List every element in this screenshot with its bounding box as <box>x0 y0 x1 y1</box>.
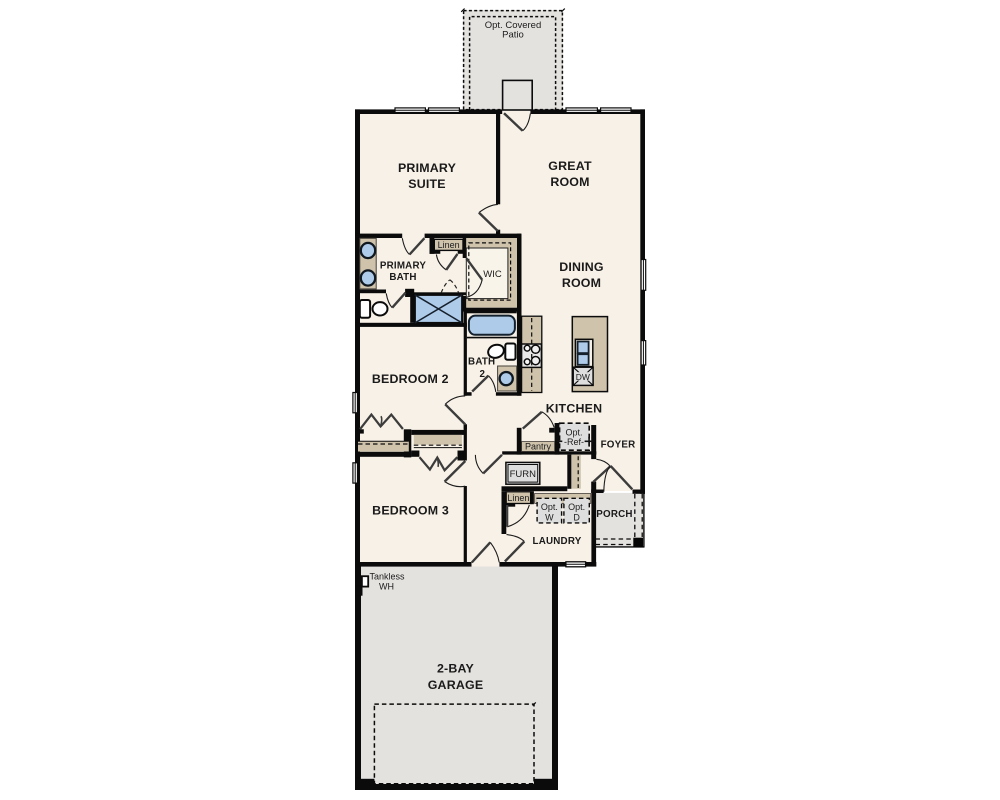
svg-text:PORCH: PORCH <box>596 509 632 520</box>
svg-text:2-BAY: 2-BAY <box>437 662 475 676</box>
svg-text:-Ref-: -Ref- <box>564 437 584 447</box>
svg-text:Linen: Linen <box>507 493 529 503</box>
svg-text:Opt.: Opt. <box>565 427 582 437</box>
svg-text:ROOM: ROOM <box>550 175 589 189</box>
svg-text:W: W <box>545 513 554 523</box>
svg-text:DW: DW <box>576 372 590 382</box>
svg-text:GARAGE: GARAGE <box>428 678 484 692</box>
svg-text:LAUNDRY: LAUNDRY <box>533 536 582 547</box>
svg-text:Patio: Patio <box>502 30 524 41</box>
svg-text:Opt.: Opt. <box>568 502 585 512</box>
svg-text:BEDROOM 3: BEDROOM 3 <box>372 504 449 518</box>
svg-text:WH: WH <box>379 582 394 592</box>
svg-text:PRIMARY: PRIMARY <box>380 260 426 271</box>
svg-text:Linen: Linen <box>438 240 460 250</box>
svg-text:KITCHEN: KITCHEN <box>546 402 602 416</box>
svg-text:FOYER: FOYER <box>601 439 636 450</box>
svg-text:BATH: BATH <box>389 272 416 283</box>
svg-text:GREAT: GREAT <box>548 159 592 173</box>
svg-text:Tankless: Tankless <box>369 572 405 582</box>
svg-text:ROOM: ROOM <box>562 276 601 290</box>
svg-text:D: D <box>573 513 580 523</box>
svg-text:PRIMARY: PRIMARY <box>398 161 457 175</box>
svg-text:FURN: FURN <box>510 469 537 480</box>
svg-text:BEDROOM 2: BEDROOM 2 <box>372 372 449 386</box>
svg-text:Pantry: Pantry <box>525 442 552 452</box>
svg-text:DINING: DINING <box>559 260 604 274</box>
svg-text:WIC: WIC <box>483 269 502 280</box>
svg-text:BATH: BATH <box>468 356 495 367</box>
svg-text:Opt.: Opt. <box>541 502 558 512</box>
svg-text:SUITE: SUITE <box>408 177 446 191</box>
